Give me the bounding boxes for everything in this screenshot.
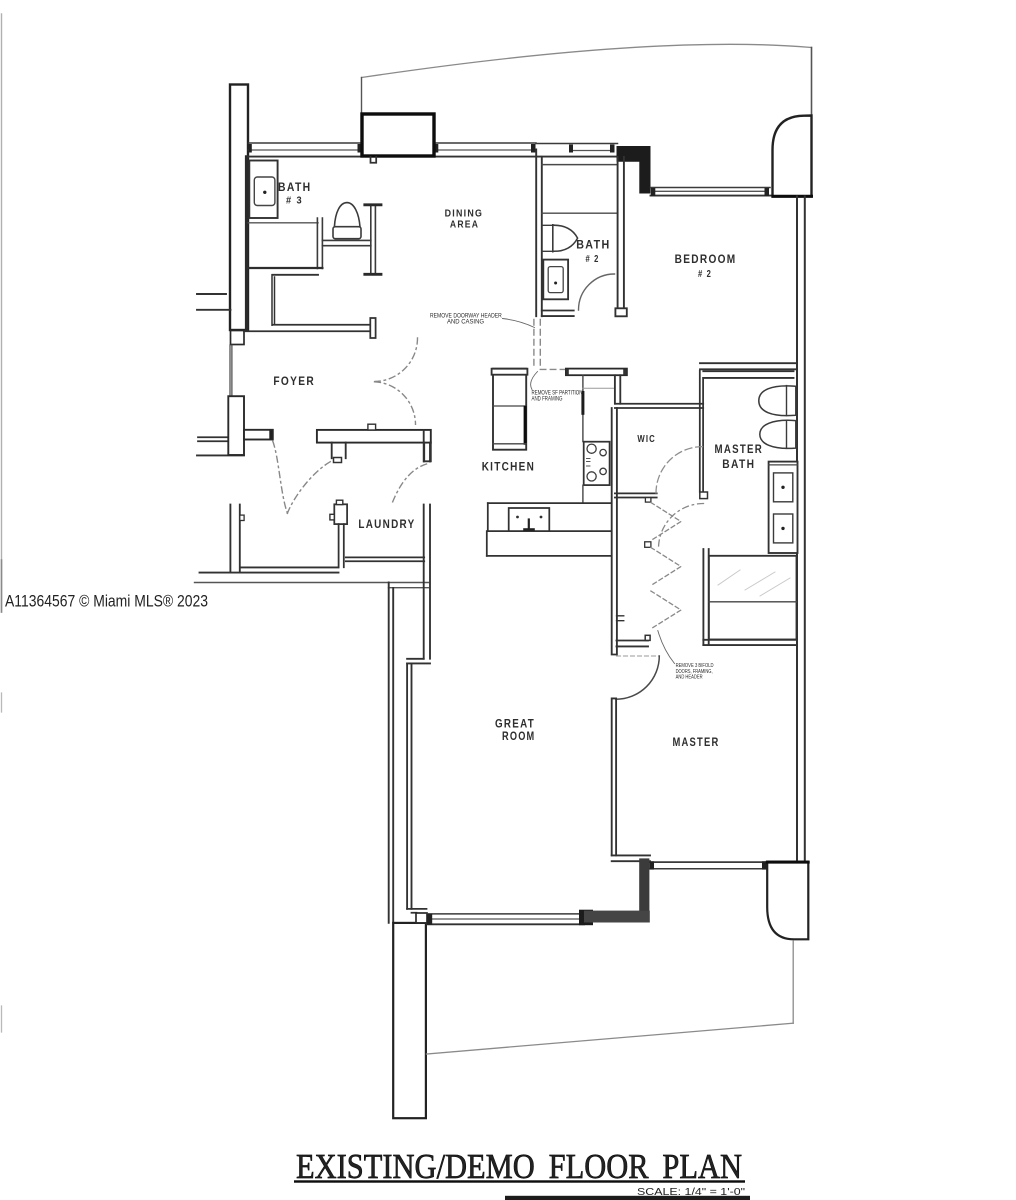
svg-text:REMOVE SF PARTITION: REMOVE SF PARTITION <box>532 390 583 396</box>
svg-text:MASTER: MASTER <box>715 444 764 456</box>
svg-text:AND CASING: AND CASING <box>447 320 484 326</box>
svg-text:A11364567 © Miami MLS® 2023: A11364567 © Miami MLS® 2023 <box>5 593 208 611</box>
svg-text:AND HEADER: AND HEADER <box>676 675 703 681</box>
svg-text:LAUNDRY: LAUNDRY <box>358 519 415 531</box>
svg-text:FOYER: FOYER <box>273 376 315 388</box>
svg-text:GREAT: GREAT <box>495 719 535 731</box>
svg-text:BATH: BATH <box>278 182 312 194</box>
svg-text:WIC: WIC <box>637 433 656 445</box>
svg-text:AND FRAMING: AND FRAMING <box>532 397 563 403</box>
svg-text:BATH: BATH <box>722 459 755 471</box>
svg-text:# 3: # 3 <box>286 196 303 207</box>
svg-text:MASTER: MASTER <box>673 737 720 749</box>
svg-text:# 2: # 2 <box>698 269 712 280</box>
svg-text:KITCHEN: KITCHEN <box>482 461 535 473</box>
svg-text:ROOM: ROOM <box>502 731 535 743</box>
svg-text:AREA: AREA <box>450 218 479 230</box>
svg-text:REMOVE DOORWAY HEADER: REMOVE DOORWAY HEADER <box>430 313 502 319</box>
svg-text:BEDROOM: BEDROOM <box>675 254 737 266</box>
svg-text:# 2: # 2 <box>586 254 600 265</box>
svg-text:BATH: BATH <box>576 239 611 251</box>
